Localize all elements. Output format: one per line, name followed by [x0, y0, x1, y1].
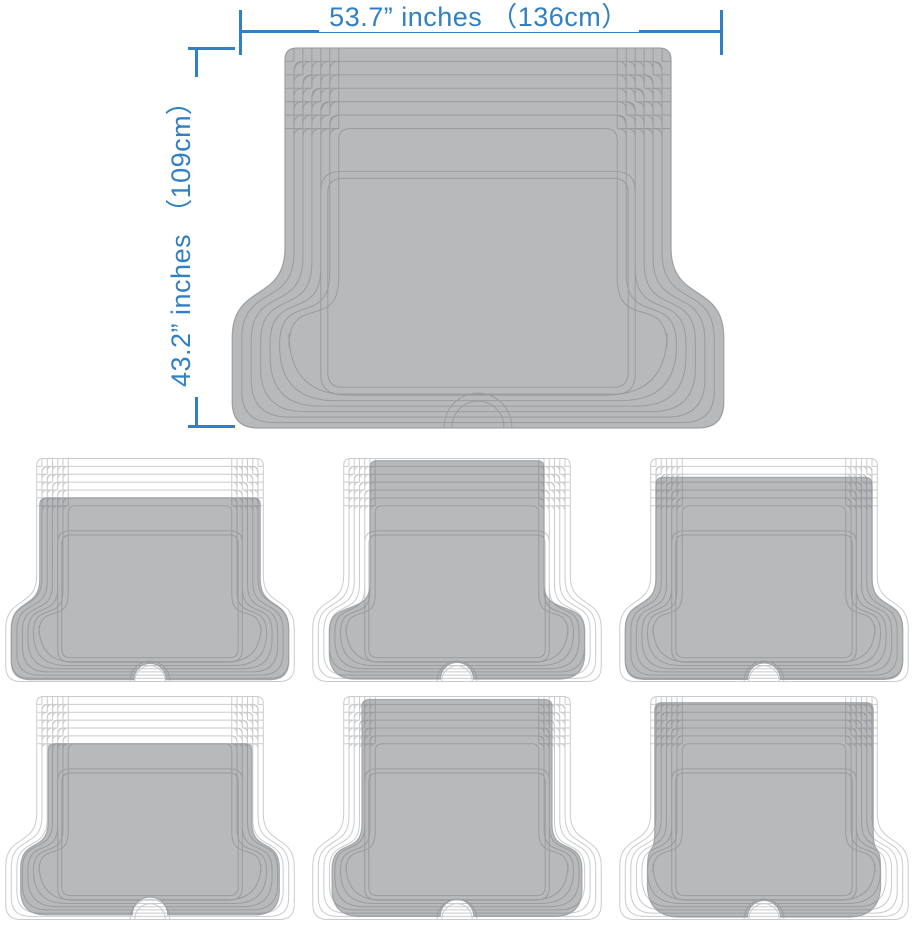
- mat-variant-trim-top-depth: [4, 456, 296, 684]
- mat-variant-trim-all-around: [4, 694, 296, 922]
- mat-variant-illustration: [4, 694, 296, 922]
- mat-variant-trim-slight-top: [618, 456, 910, 684]
- mat-variant-trim-width-full-depth: [311, 694, 603, 922]
- mat-surface: [232, 48, 723, 428]
- mat-variant-trim-tongue-width: [311, 456, 603, 684]
- main-cargo-mat-illustration: [229, 44, 727, 432]
- mat-variant-illustration: [618, 694, 910, 922]
- mat-variant-illustration: [4, 456, 296, 684]
- mat-surface: [329, 461, 584, 679]
- mat-variant-illustration: [311, 694, 603, 922]
- mat-variant-illustration: [618, 456, 910, 684]
- height-dimension-label: 43.2” inches （109cm）: [158, 46, 204, 428]
- main-cargo-mat: [229, 44, 727, 432]
- width-dimension-label: 53.7” inches （136cm）: [238, 2, 720, 33]
- mat-variant-trim-side-wings: [618, 694, 910, 922]
- mat-surface: [21, 744, 280, 915]
- mat-variant-illustration: [311, 456, 603, 684]
